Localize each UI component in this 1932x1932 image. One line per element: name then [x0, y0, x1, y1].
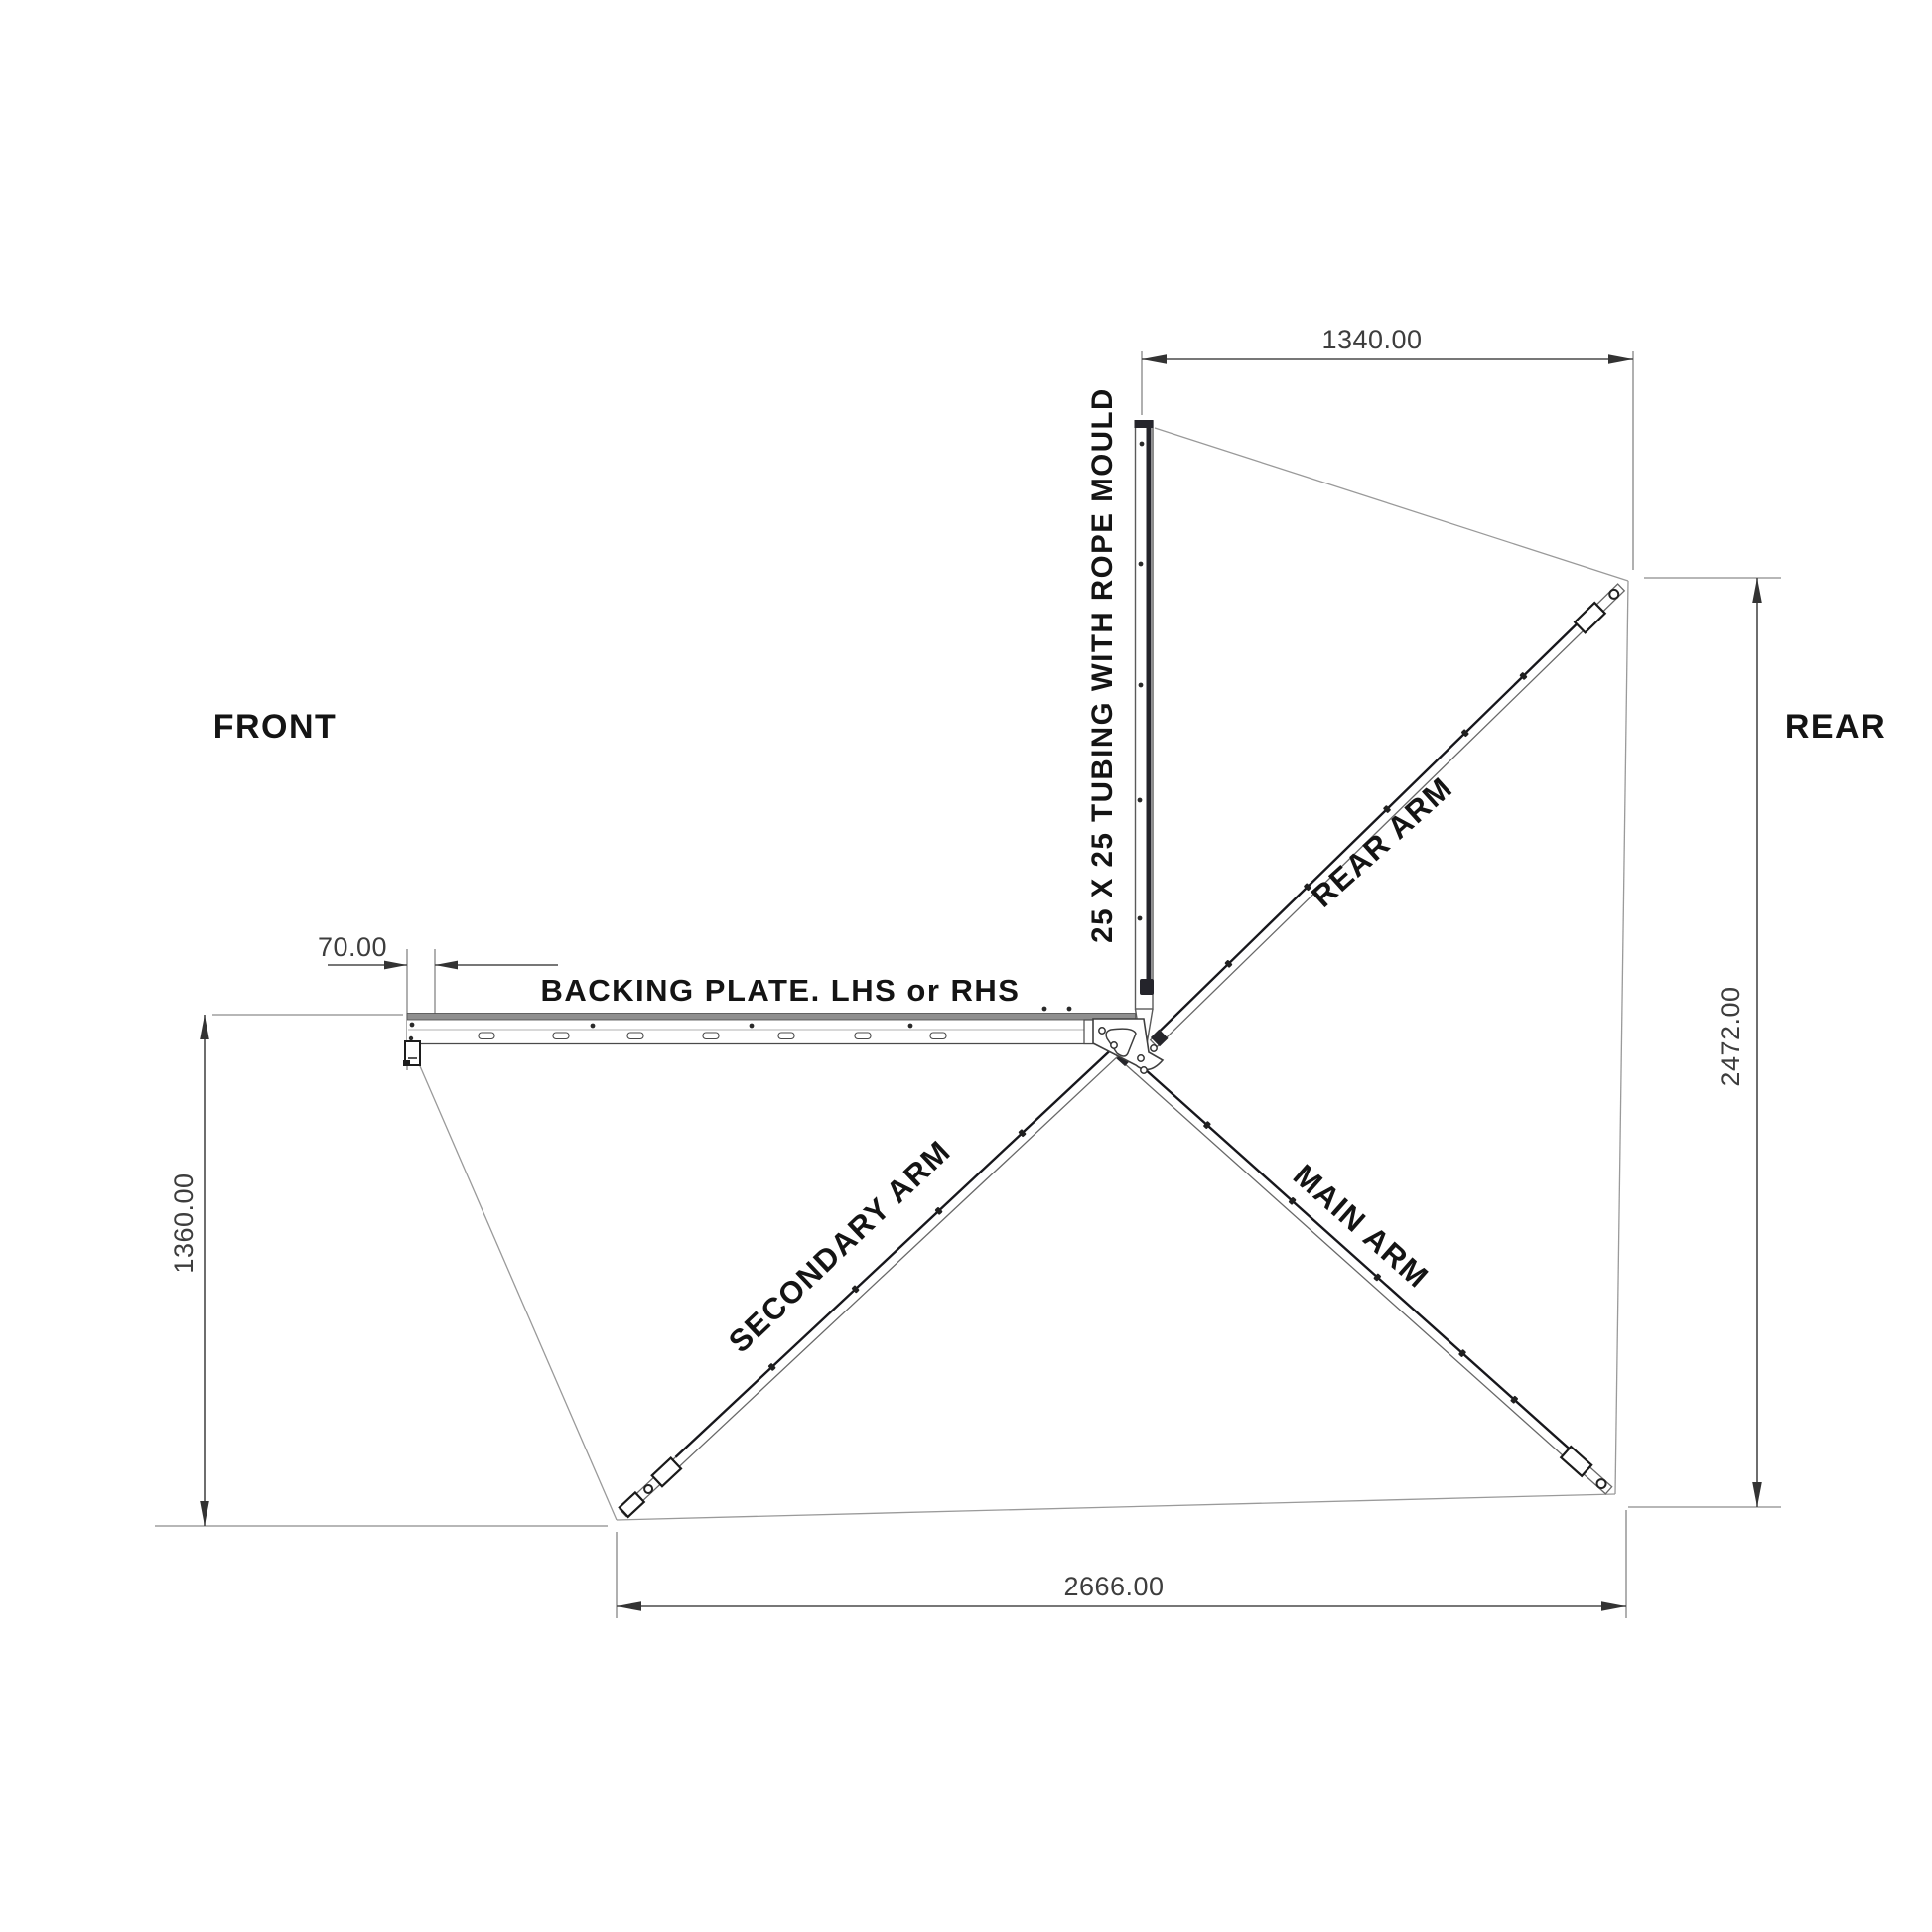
awning-technical-diagram: 1340.00 70.00 1360.00 2472.00 2666.00: [0, 0, 1932, 1932]
rear-arm-edge: [1161, 618, 1585, 1031]
arrow-left-icon: [1142, 354, 1167, 364]
fabric-edge-top: [1155, 428, 1628, 581]
mounting-slot: [553, 1033, 569, 1039]
dimension-rear-extent: 2472.00: [1628, 578, 1781, 1507]
tube-rivet: [1139, 683, 1144, 688]
fabric-edge-bottom: [617, 1494, 1615, 1520]
arrow-right-icon: [1608, 354, 1633, 364]
rear-arm-label: REAR ARM: [1305, 770, 1459, 914]
arrow-left-icon: [435, 961, 458, 970]
mounting-slot: [855, 1033, 871, 1039]
hub-rivet: [1099, 1028, 1105, 1034]
arrow-right-icon: [1601, 1601, 1626, 1611]
drawing-canvas: 1340.00 70.00 1360.00 2472.00 2666.00: [0, 0, 1932, 1932]
mounting-slot: [778, 1033, 794, 1039]
backing-plate-label: BACKING PLATE. LHS or RHS: [541, 973, 1021, 1008]
hub-rivet: [1141, 1067, 1147, 1073]
bolt-head: [409, 1036, 413, 1040]
hub-rivet: [1111, 1042, 1117, 1048]
front-label: FRONT: [213, 708, 338, 746]
mounting-slot: [479, 1033, 494, 1039]
fabric-edge-left: [414, 1052, 617, 1520]
awning-tube: [1135, 420, 1155, 1050]
mounting-slot: [703, 1033, 719, 1039]
tube-rivet: [1139, 562, 1144, 567]
dimension-bottom-span: 2666.00: [617, 1510, 1626, 1618]
arrow-up-icon: [200, 1015, 209, 1039]
fabric-edge-right: [1615, 581, 1628, 1494]
tube-top-cap: [1135, 420, 1154, 428]
dimension-plate-offset: 70.00: [318, 932, 558, 1070]
tube-rivet: [1140, 442, 1145, 447]
dimension-value: 2666.00: [1063, 1572, 1164, 1601]
bolt-head: [410, 1023, 415, 1028]
bracket-foot: [403, 1060, 410, 1066]
arrow-down-icon: [200, 1501, 209, 1526]
main-arm-joint-collar: [1561, 1447, 1591, 1476]
rope-mould-foot: [1140, 979, 1154, 995]
tube-rivet: [1138, 798, 1143, 803]
main-arm: [1114, 1046, 1614, 1496]
tube-label: 25 X 25 TUBING WITH ROPE MOULD: [1086, 387, 1119, 943]
dimension-value: 1360.00: [169, 1173, 199, 1273]
backing-plate: [403, 1007, 1136, 1066]
mounting-slot: [627, 1033, 643, 1039]
secondary-arm-tube: [620, 1038, 1130, 1517]
bolt-head: [1042, 1007, 1047, 1012]
bolt-head: [908, 1024, 913, 1029]
main-arm-edge: [1133, 1058, 1577, 1455]
arrow-down-icon: [1752, 1482, 1762, 1507]
dimension-front-extent: 1360.00: [155, 1015, 608, 1526]
hub-rivet: [1151, 1045, 1157, 1051]
dimension-value: 70.00: [318, 932, 387, 962]
hub-rivet: [1138, 1055, 1144, 1061]
plate-top-edge: [407, 1014, 1136, 1021]
arrow-left-icon: [617, 1601, 641, 1611]
labels: FRONT REAR BACKING PLATE. LHS or RHS 25 …: [213, 387, 1886, 1359]
bolt-head: [591, 1024, 596, 1029]
mounting-slot: [930, 1033, 946, 1039]
bolt-head: [750, 1024, 755, 1029]
dimension-value: 1340.00: [1321, 325, 1422, 354]
secondary-arm: [618, 1035, 1132, 1518]
arrow-right-icon: [384, 961, 407, 970]
rear-label: REAR: [1785, 708, 1886, 746]
rear-arm-joint-collar: [1575, 603, 1605, 632]
secondary-arm-edge: [676, 1047, 1114, 1457]
bolt-head: [1067, 1007, 1072, 1012]
secondary-arm-label: SECONDARY ARM: [722, 1134, 957, 1360]
arrow-up-icon: [1752, 578, 1762, 603]
dimension-value: 2472.00: [1716, 986, 1745, 1086]
tube-rivet: [1138, 916, 1143, 921]
main-arm-tube: [1116, 1048, 1612, 1493]
